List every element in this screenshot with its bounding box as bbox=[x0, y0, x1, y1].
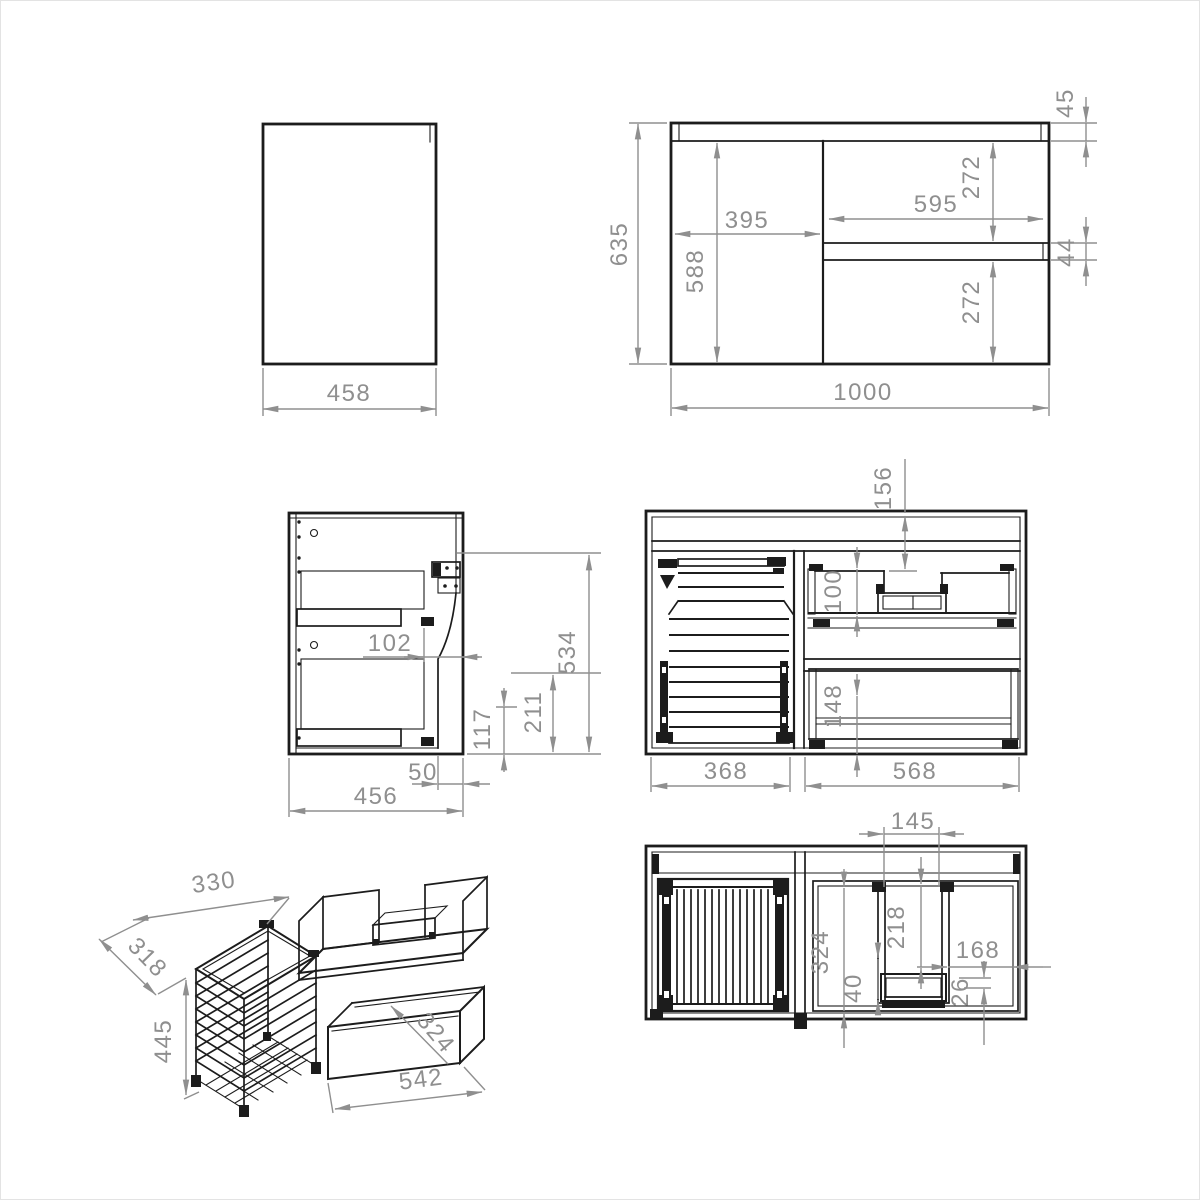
dim-lower-inner-height: 148 bbox=[820, 684, 847, 729]
view-isometric: 330 318 445 324 542 bbox=[99, 866, 487, 1117]
dim-slide-offset: 102 bbox=[368, 630, 413, 657]
dim-tray-width: 40 bbox=[840, 973, 867, 1003]
dim-back-clearance: 50 bbox=[408, 759, 438, 786]
dim-basket-width: 330 bbox=[190, 866, 238, 899]
view-front-elevation: 635 395 588 595 272 272 45 44 1000 bbox=[606, 88, 1097, 416]
dim-iso-drawer-width: 542 bbox=[397, 1063, 445, 1095]
dim-plan-depth: 324 bbox=[807, 930, 834, 975]
view-side-section: 102 534 211 117 50 456 bbox=[289, 513, 601, 817]
dim-clearance: 26 bbox=[947, 977, 974, 1007]
dim-right-compartment-width: 568 bbox=[893, 758, 938, 785]
dim-mid-height: 211 bbox=[520, 691, 547, 734]
dim-drawer-front-width: 595 bbox=[914, 191, 959, 218]
dim-section-depth: 456 bbox=[354, 783, 399, 810]
dim-top-clearance: 156 bbox=[870, 466, 897, 511]
dim-bottom-drawer-height: 272 bbox=[958, 280, 985, 325]
dim-cutout-width: 145 bbox=[891, 808, 936, 835]
basket-plan-wires bbox=[677, 890, 768, 1004]
technical-drawing-page: 458 635 395 588 595 272 272 bbox=[0, 0, 1200, 1200]
dim-basket-height: 445 bbox=[150, 1019, 177, 1064]
view-front-section: 156 100 148 368 568 bbox=[646, 459, 1026, 792]
dim-door-width: 395 bbox=[725, 207, 770, 234]
dim-upper-inner-height: 100 bbox=[820, 569, 847, 614]
dim-drawer-gap: 44 bbox=[1053, 237, 1080, 267]
dim-front-height: 635 bbox=[606, 222, 633, 267]
view-plan-section: 145 218 324 40 26 168 bbox=[646, 808, 1051, 1048]
dim-inner-height: 534 bbox=[554, 630, 581, 675]
dim-side-width: 458 bbox=[327, 380, 372, 407]
dim-front-width: 1000 bbox=[833, 379, 892, 406]
view-side-panel: 458 bbox=[263, 124, 436, 416]
dim-right-section-width: 168 bbox=[956, 937, 1001, 964]
cabinet-dimension-drawing: 458 635 395 588 595 272 272 bbox=[1, 1, 1200, 1200]
dim-top-rail-height: 45 bbox=[1052, 88, 1079, 118]
dim-cutout-depth: 218 bbox=[883, 905, 910, 950]
dim-basket-depth: 318 bbox=[122, 932, 172, 983]
dim-slide-height: 117 bbox=[469, 708, 496, 751]
dim-top-drawer-height: 272 bbox=[958, 155, 985, 200]
dim-left-compartment-width: 368 bbox=[704, 758, 749, 785]
dim-door-height: 588 bbox=[682, 249, 709, 294]
